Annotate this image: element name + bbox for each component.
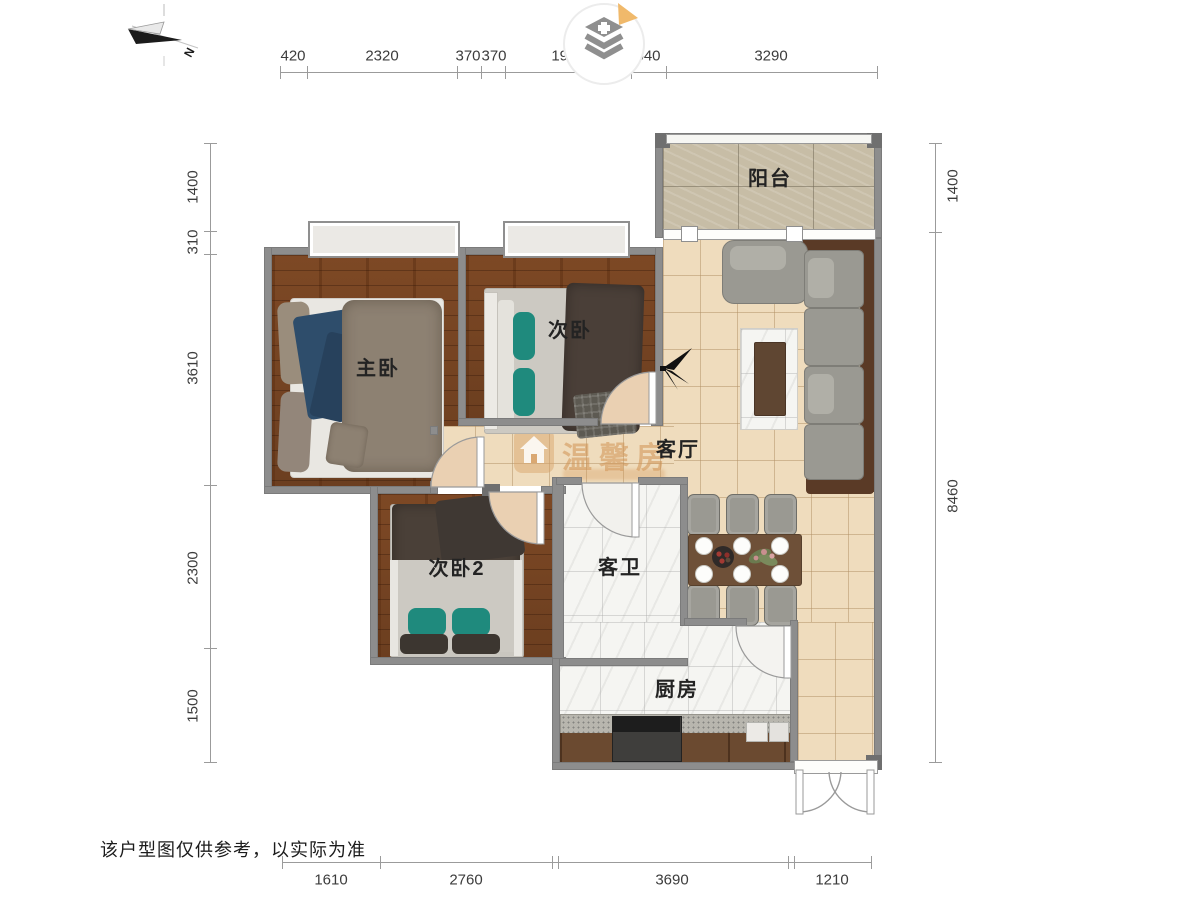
dim-line-right <box>935 143 936 762</box>
dim-tick <box>794 856 795 869</box>
dim-tick <box>457 66 458 79</box>
entry-door-leaf <box>796 770 803 814</box>
dim-line-bottom <box>282 862 872 863</box>
dim-bottom-3: 1210 <box>815 873 848 888</box>
room-label-balcony: 阳台 <box>748 169 792 189</box>
dim-left-1: 310 <box>186 229 201 254</box>
dim-tick <box>204 762 217 763</box>
kitchen-door-leaf <box>784 626 791 678</box>
kitchen-door-arc <box>736 626 788 678</box>
dim-tick <box>307 66 308 79</box>
dim-top-1: 2320 <box>365 49 398 64</box>
room-label-living: 客厅 <box>656 440 700 460</box>
bathroom-door-arc <box>582 483 636 537</box>
entry-door-leaf <box>867 770 874 814</box>
dim-tick <box>380 856 381 869</box>
dim-tick <box>204 231 217 232</box>
room-label-master: 主卧 <box>356 359 400 379</box>
dim-tick <box>204 485 217 486</box>
room-label-kitchen: 厨房 <box>655 680 699 700</box>
dim-tick <box>929 232 942 233</box>
dim-tick <box>204 254 217 255</box>
dim-line-left <box>210 143 211 762</box>
dim-bottom-1: 2760 <box>449 873 482 888</box>
dim-left-4: 1500 <box>186 689 201 722</box>
room-label-bedroom2: 次卧 <box>548 321 592 341</box>
dim-tick <box>788 856 789 869</box>
dim-top-2: 370 <box>455 49 480 64</box>
bedroom2-door-leaf <box>649 372 656 424</box>
dim-right-0: 1400 <box>946 169 961 202</box>
compass: N <box>112 4 222 66</box>
dim-left-0: 1400 <box>186 170 201 203</box>
dim-tick <box>871 856 872 869</box>
dim-tick <box>280 66 281 79</box>
dim-tick <box>558 856 559 869</box>
dim-bottom-2: 3690 <box>655 873 688 888</box>
door-arc-overlay <box>0 0 1200 900</box>
dim-top-0: 420 <box>280 49 305 64</box>
dim-tick <box>666 66 667 79</box>
dim-right-1: 8460 <box>946 479 961 512</box>
dim-tick <box>929 143 942 144</box>
entry-door-arc-right <box>829 772 871 812</box>
room-label-bedroom3: 次卧2 <box>428 559 485 579</box>
master-door-leaf <box>477 437 484 487</box>
layers-badge-button[interactable] <box>558 0 650 88</box>
master-door-arc <box>431 437 481 487</box>
dim-left-2: 3610 <box>186 351 201 384</box>
dim-tick <box>481 66 482 79</box>
floor-plan-page: 温馨房 <box>0 0 1200 900</box>
dim-tick <box>204 143 217 144</box>
dim-left-3: 2300 <box>186 551 201 584</box>
room-label-bath: 客卫 <box>598 558 642 578</box>
dim-top-3: 370 <box>481 49 506 64</box>
bedroom2-door-arc <box>601 372 653 424</box>
dim-tick <box>204 648 217 649</box>
dim-top-6: 3290 <box>754 49 787 64</box>
dim-tick <box>929 762 942 763</box>
dim-tick <box>505 66 506 79</box>
bathroom-door-leaf <box>632 483 639 537</box>
bedroom3-door-arc <box>489 492 541 544</box>
dim-tick <box>877 66 878 79</box>
dim-bottom-0: 1610 <box>314 873 347 888</box>
tv-symbol-icon <box>660 348 692 390</box>
bedroom3-door-leaf <box>537 492 544 544</box>
disclaimer-text: 该户型图仅供参考，以实际为准 <box>100 836 366 862</box>
dim-tick <box>552 856 553 869</box>
